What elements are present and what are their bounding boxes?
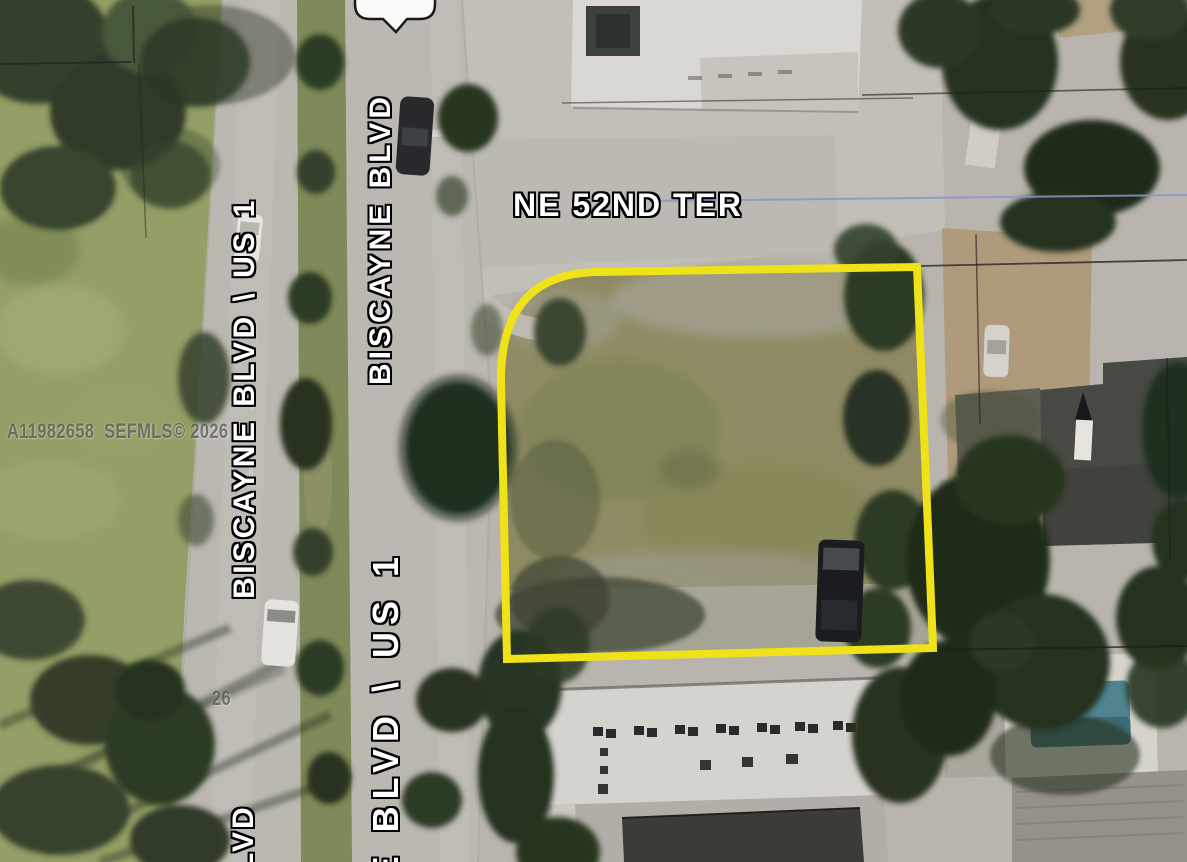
white-car	[234, 213, 264, 263]
aerial-photo-canvas	[0, 0, 1187, 862]
dark-truck	[395, 96, 434, 176]
white-van	[261, 599, 300, 667]
black-truck-on-parcel	[815, 539, 865, 643]
aerial-map-image[interactable]: NE 52ND TER BISCAYNE BLVD \ US 1 BISCAYN…	[0, 0, 1187, 862]
white-car-driveway	[983, 325, 1010, 378]
bottom-building-roof	[543, 678, 888, 862]
